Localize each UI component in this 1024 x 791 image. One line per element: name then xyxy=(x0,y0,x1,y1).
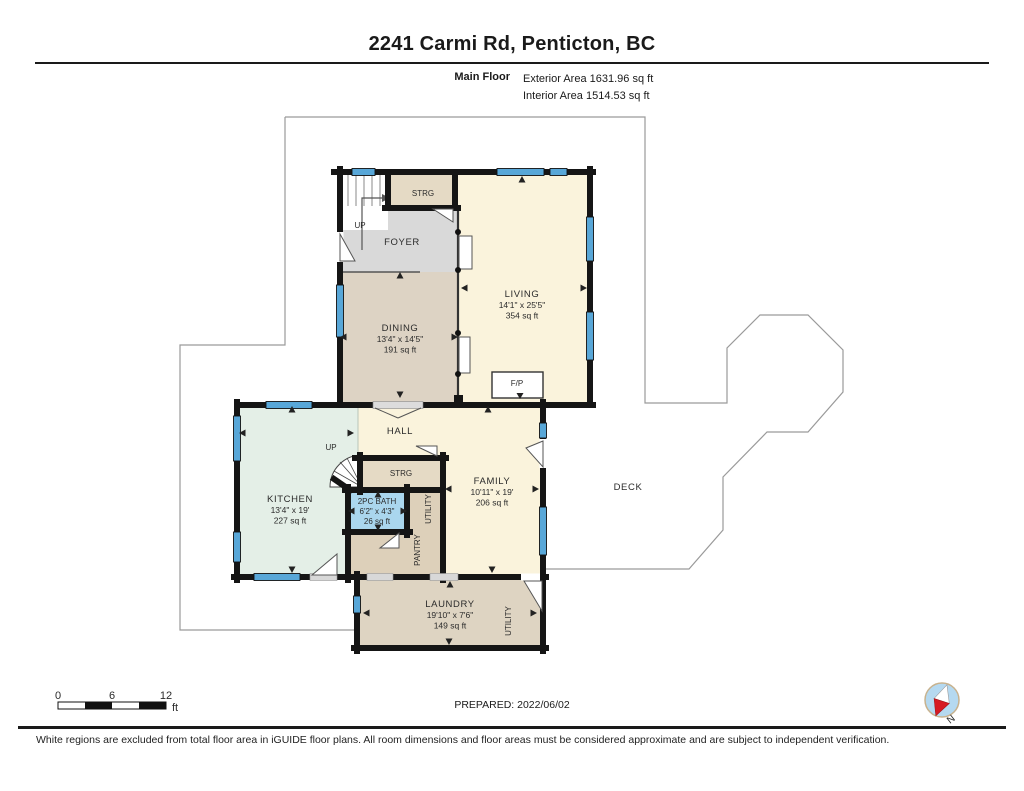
strg-top-label: STRG xyxy=(412,189,434,198)
utility-laundry-label: UTILITY xyxy=(504,605,513,635)
bath-label: 2PC BATH xyxy=(358,497,397,506)
floorplan-drawing: F/P LIVING 14'1" x 25'5" 354 xyxy=(0,0,1024,791)
dining-label: DINING xyxy=(382,323,419,334)
deck-label: DECK xyxy=(614,482,643,493)
bath-area: 26 sq ft xyxy=(364,517,391,526)
floorplan-page: 2241 Carmi Rd, Penticton, BC Main Floor … xyxy=(0,0,1024,791)
foyer-label: FOYER xyxy=(384,237,420,248)
family-dims: 10'11" x 19' xyxy=(471,487,514,497)
living-dims: 14'1" x 25'5" xyxy=(499,300,546,310)
prepared-date: PREPARED: 2022/06/02 xyxy=(0,699,1024,711)
kitchen-label: KITCHEN xyxy=(267,494,313,505)
family-area: 206 sq ft xyxy=(476,498,509,508)
laundry-dims: 19'10" x 7'6" xyxy=(427,610,474,620)
strg-mid-label: STRG xyxy=(390,469,412,478)
bath-dims: 6'2" x 4'3" xyxy=(360,507,395,516)
fireplace-label: F/P xyxy=(511,379,523,388)
up-top-label: UP xyxy=(354,221,365,230)
wall-post xyxy=(454,395,463,405)
living-door-panel xyxy=(459,236,472,269)
laundry-area: 149 sq ft xyxy=(434,621,467,631)
hall-label: HALL xyxy=(387,426,413,437)
utility-mid-label: UTILITY xyxy=(424,493,433,523)
living-area: 354 sq ft xyxy=(506,311,539,321)
kitchen-area: 227 sq ft xyxy=(274,516,307,526)
dining-dims: 13'4" x 14'5" xyxy=(377,334,424,344)
living-label: LIVING xyxy=(505,289,540,300)
footer-divider xyxy=(18,726,1006,729)
compass-north-label: N xyxy=(945,713,957,726)
room-kitchen xyxy=(237,405,358,577)
laundry-label: LAUNDRY xyxy=(425,599,474,610)
living-door-panel xyxy=(459,337,470,373)
dining-area: 191 sq ft xyxy=(384,345,417,355)
up-mid-label: UP xyxy=(325,443,336,452)
fireplace: F/P xyxy=(492,372,543,399)
kitchen-dims: 13'4" x 19' xyxy=(271,505,310,515)
pantry-label: PANTRY xyxy=(413,533,422,565)
family-label: FAMILY xyxy=(474,476,511,487)
disclaimer-text: White regions are excluded from total fl… xyxy=(36,734,996,746)
